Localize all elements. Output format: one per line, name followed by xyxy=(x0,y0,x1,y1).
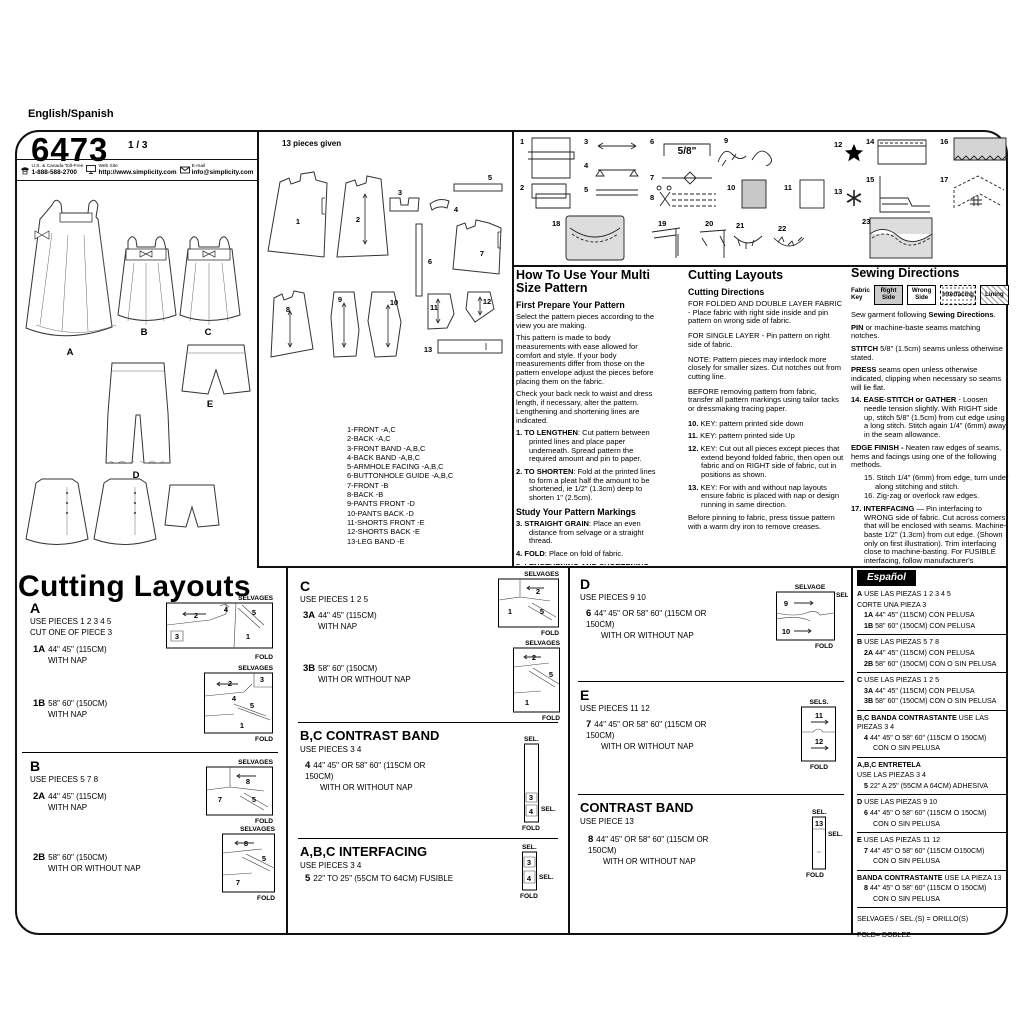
svg-text:11: 11 xyxy=(815,711,823,720)
view-d-pants xyxy=(106,363,170,463)
svg-text:1: 1 xyxy=(296,217,300,226)
svg-text:22: 22 xyxy=(778,224,786,233)
diagram-grain-icon xyxy=(598,143,636,149)
diagram-20-icon xyxy=(700,230,726,258)
layout-entry-3a: 3A44" 45" (115CM)WITH NAP xyxy=(303,610,453,633)
layout-diagram-1b: SELVAGES 2 3 4 5 1 FOLD xyxy=(204,664,274,742)
layout-diagram-1a: SELVAGES 2 4 5 3 1 FOLD xyxy=(166,594,274,660)
espanol-row: 2B58" 60" (150CM) CON O SIN PELUSA xyxy=(857,660,1007,669)
svg-text:18: 18 xyxy=(552,219,560,228)
espanol-divider xyxy=(857,710,1007,711)
svg-text:SELVAGES: SELVAGES xyxy=(238,759,274,766)
diagram-notch-icon xyxy=(662,172,712,184)
espanol-divider xyxy=(857,634,1007,635)
howto-p3: Check your back neck to waist and dress … xyxy=(516,390,662,425)
section-c-use: USE PIECES 1 2 5 xyxy=(300,595,368,604)
divider-bottom-1 xyxy=(286,567,288,933)
fabric-key-label: Fabric Key xyxy=(851,288,870,302)
sewing-step: 15. Stitch 1/4" (6mm) from edge, turn un… xyxy=(851,474,1009,491)
svg-text:12: 12 xyxy=(815,737,823,746)
pieces-given-title: 13 pieces given xyxy=(282,139,341,148)
svg-text:8: 8 xyxy=(246,777,250,786)
svg-text:6: 6 xyxy=(428,257,432,266)
espanol-row: CON O SIN PELUSA xyxy=(857,744,1007,753)
layout-entry-8: 844" 45" OR 58" 60" (115CM OR 150CM)WITH… xyxy=(588,834,738,867)
divider-bottom-3 xyxy=(851,567,853,933)
espanol-row: CUSE LAS PIEZAS 1 2 5 xyxy=(857,676,1007,685)
piece-list-item: 4-BACK BAND -A,B,C xyxy=(347,453,507,462)
email-address: info@simplicity.com xyxy=(192,169,254,176)
espanol-row: 1B58" 60" (150CM) CON PELUSA xyxy=(857,622,1007,631)
view-label-d: D xyxy=(133,470,140,481)
layout-entry-1a: 1A44" 45" (115CM)WITH NAP xyxy=(33,644,183,667)
piece-list-item: 13-LEG BAND -E xyxy=(347,537,507,546)
view-label-b: B xyxy=(141,327,148,338)
contact-bar: U.S. & Canada Toll-Free 1-888-588-2700 W… xyxy=(17,159,257,181)
svg-text:FOLD: FOLD xyxy=(520,893,538,899)
svg-text:5: 5 xyxy=(252,795,256,804)
svg-text:14: 14 xyxy=(866,137,875,146)
svg-text:5: 5 xyxy=(488,173,492,182)
piece-list-item: 7-FRONT -B xyxy=(347,481,507,490)
sewing-p: PRESS seams open unless otherwise indica… xyxy=(851,366,1009,392)
layout-entry-6: 644" 45" OR 58" 60" (115CM OR 150CM)WITH… xyxy=(586,608,736,641)
svg-text:FOLD: FOLD xyxy=(255,654,273,660)
howto-title: How To Use Your Multi Size Pattern xyxy=(516,269,662,295)
espanol-divider xyxy=(857,907,1007,908)
back-view-3 xyxy=(165,485,219,527)
svg-text:8: 8 xyxy=(286,305,290,314)
web-url: http://www.simplicity.com xyxy=(98,169,176,176)
layout-entry-7: 744" 45" OR 58" 60" (115CM OR 150CM)WITH… xyxy=(586,719,736,752)
svg-text:2: 2 xyxy=(532,653,536,662)
svg-text:10: 10 xyxy=(390,298,398,307)
diagram-lines-icon xyxy=(596,190,638,195)
web-group: Web Site http://www.simplicity.com xyxy=(86,164,176,176)
email-group: E-mail info@simplicity.com xyxy=(180,164,254,176)
svg-text:5: 5 xyxy=(549,670,553,679)
svg-text:SELVAGE: SELVAGE xyxy=(795,584,826,591)
fabric-key-right-side: Right Side xyxy=(874,285,903,305)
seam-allowance-text: 5/8" xyxy=(678,146,697,157)
espanol-fold-note: FOLD= DOBLEZ xyxy=(857,931,1007,940)
espanol-row: BANDA CONTRASTANTEUSE LA PIEZA 13 xyxy=(857,874,1007,883)
svg-text:SEL.: SEL. xyxy=(812,809,827,816)
svg-text:SELVAGES: SELVAGES xyxy=(238,665,274,672)
svg-text:SELVAGES: SELVAGES xyxy=(238,595,274,602)
espanol-selvage-note: SELVAGES / SEL.(S) = ORILLO(S) xyxy=(857,915,1007,924)
svg-text:SELVAGES: SELVAGES xyxy=(524,571,560,578)
diagram-fold-icon xyxy=(596,170,638,176)
howto-marking: 4. FOLD: Place on fold of fabric. xyxy=(516,550,662,559)
sewing-p: STITCH 5/8" (1.5cm) seams unless otherwi… xyxy=(851,345,1009,362)
piece-list-item: 11-SHORTS FRONT -E xyxy=(347,518,507,527)
sewing-step: 17. INTERFACING — Pin interfacing to WRO… xyxy=(851,505,1009,565)
piece-list-item: 5-ARMHOLE FACING -A,B,C xyxy=(347,462,507,471)
piece-list-item: 3-FRONT BAND -A,B,C xyxy=(347,444,507,453)
svg-text:2: 2 xyxy=(228,679,232,688)
howto-step: 2. TO SHORTEN: Fold at the printed lines… xyxy=(516,468,662,503)
diagram-15-icon xyxy=(880,176,930,212)
diagram-cutting-lines-icon xyxy=(672,194,716,206)
contrast-band-title: CONTRAST BAND xyxy=(580,800,693,815)
svg-text:7: 7 xyxy=(480,249,484,258)
rule-a-b xyxy=(22,752,278,753)
phone-icon xyxy=(20,165,30,175)
diagram-22-icon xyxy=(774,237,804,246)
svg-text:3: 3 xyxy=(527,858,531,867)
cutting-title: Cutting Layouts xyxy=(688,269,844,282)
cutting-step: 12. KEY: Cut out all pieces except piece… xyxy=(688,445,844,480)
espanol-row: 522" A 25" (55CM A 64CM) ADHESIVA xyxy=(857,782,1007,791)
svg-text:4: 4 xyxy=(454,205,459,214)
piece-list-item: 6-BUTTONHOLE GUIDE -A,B,C xyxy=(347,471,507,480)
garment-views-illustration: A B C D E xyxy=(18,183,255,563)
svg-text:FOLD: FOLD xyxy=(255,736,273,742)
cutting-p4: BEFORE removing pattern from fabric, tra… xyxy=(688,388,844,414)
svg-text:SEL.: SEL. xyxy=(539,874,554,881)
layout-entry-3b: 3B58" 60" (150CM)WITH OR WITHOUT NAP xyxy=(303,663,453,686)
section-b-letter: B xyxy=(30,758,40,774)
espanol-column: Español AUSE LAS PIEZAS 1 2 3 4 5 CORTE … xyxy=(857,570,1007,942)
piece-list-item: 1-FRONT -A,C xyxy=(347,425,507,434)
svg-text:3: 3 xyxy=(398,188,402,197)
espanol-row: 3B58" 60" (150CM) CON O SIN PELUSA xyxy=(857,697,1007,706)
espanol-row: 2A44" 45" (115CM) CON PELUSA xyxy=(857,649,1007,658)
svg-text:6: 6 xyxy=(650,137,654,146)
svg-text:9: 9 xyxy=(338,295,342,304)
layout-diagram-7: SELS. 11 12 FOLD xyxy=(791,698,847,770)
svg-text:1: 1 xyxy=(525,698,529,707)
espanol-row: BUSE LAS PIEZAS 5 7 8 xyxy=(857,638,1007,647)
layout-diagram-6: SELVAGE 9 10 SEL. FOLD xyxy=(770,583,848,649)
bc-contrast-band-title: B,C CONTRAST BAND xyxy=(300,728,439,743)
sewing-title: Sewing Directions xyxy=(851,267,1009,280)
howto-p1: Select the pattern pieces according to t… xyxy=(516,313,662,330)
svg-text:FOLD: FOLD xyxy=(257,895,275,901)
diagram-18-icon xyxy=(566,216,624,260)
svg-text:FOLD: FOLD xyxy=(542,715,560,721)
rule-e-band xyxy=(578,794,844,795)
espanol-row: DUSE LAS PIEZAS 9 10 xyxy=(857,798,1007,807)
svg-text:5: 5 xyxy=(540,607,544,616)
svg-text:12: 12 xyxy=(483,297,491,306)
svg-text:3: 3 xyxy=(584,137,588,146)
howto-step: 1. TO LENGTHEN: Cut pattern between prin… xyxy=(516,429,662,464)
svg-text:8: 8 xyxy=(650,193,654,202)
piece-list-item: 2-BACK -A,C xyxy=(347,434,507,443)
contrast-band-use: USE PIECE 13 xyxy=(580,817,634,826)
layout-entry-5: 522" TO 25" (55CM TO 64CM) FUSIBLE xyxy=(305,873,455,885)
svg-text:17: 17 xyxy=(940,175,948,184)
svg-text:5: 5 xyxy=(584,185,588,194)
section-d-use: USE PIECES 9 10 xyxy=(580,593,646,602)
espanol-row: B,C BANDA CONTRASTANTEUSE LAS PIEZAS 3 4 xyxy=(857,714,1007,732)
back-view-1 xyxy=(26,479,88,545)
rule-c-bcband xyxy=(298,722,558,723)
svg-text:FOLD: FOLD xyxy=(541,630,559,636)
abc-interfacing-title: A,B,C INTERFACING xyxy=(300,844,427,859)
svg-text:7: 7 xyxy=(650,173,654,182)
view-a-dress xyxy=(26,200,112,336)
diagram-17-mark xyxy=(970,196,982,206)
cutting-step: 13. KEY: For with and without nap layout… xyxy=(688,484,844,510)
cutting-p3: NOTE: Pattern pieces may interlock more … xyxy=(688,356,844,382)
piece-list-item: 12-SHORTS BACK -E xyxy=(347,527,507,536)
svg-text:9: 9 xyxy=(724,136,728,145)
howto-markings-heading: Study Your Pattern Markings xyxy=(516,507,662,517)
abc-interfacing-use: USE PIECES 3 4 xyxy=(300,861,361,870)
howto-column: How To Use Your Multi Size Pattern First… xyxy=(516,269,662,565)
phone-number: 1-888-588-2700 xyxy=(32,169,84,176)
layout-entry-2b: 2B58" 60" (150CM)WITH OR WITHOUT NAP xyxy=(33,852,183,875)
svg-text:SEL.: SEL. xyxy=(541,806,556,813)
section-c-letter: C xyxy=(300,578,310,594)
svg-text:11: 11 xyxy=(784,183,792,192)
espanol-row: 1A44" 45" (115CM) CON PELUSA xyxy=(857,611,1007,620)
sewing-p: PIN or machine-baste seams matching notc… xyxy=(851,324,1009,341)
section-a-cut: CUT ONE OF PIECE 3 xyxy=(30,628,112,637)
svg-text:SEL.: SEL. xyxy=(524,736,539,743)
view-label-a: A xyxy=(67,347,74,358)
rule-d-e xyxy=(578,681,844,682)
cutting-step: 11. KEY: pattern printed side Up xyxy=(688,432,844,441)
computer-icon xyxy=(86,165,96,175)
howto-prep-heading: First Prepare Your Pattern xyxy=(516,300,662,310)
layout-diagram-8: SEL. 13 SEL. FOLD xyxy=(804,808,848,878)
svg-text:5: 5 xyxy=(250,701,254,710)
cutting-p2: FOR SINGLE LAYER - Pin pattern on right … xyxy=(688,332,844,349)
sewing-step: 14. EASE-STITCH or GATHER - Loosen needl… xyxy=(851,396,1009,439)
svg-text:SELVAGES: SELVAGES xyxy=(525,640,561,647)
sewing-step: 16. Zig-zag or overlock raw edges. xyxy=(851,492,1009,501)
svg-text:1: 1 xyxy=(508,607,512,616)
svg-text:FOLD: FOLD xyxy=(255,818,273,824)
pattern-instruction-sheet: { "header": { "language": "English/Spani… xyxy=(0,0,1024,1024)
cutting-step: 10. KEY: pattern printed side down xyxy=(688,420,844,429)
howto-marking: 5. LENGTHENING AND SHORTENING LINES. xyxy=(516,563,662,565)
layout-diagram-2a: SELVAGES 8 7 5 FOLD xyxy=(206,758,274,824)
divider-vertical-1 xyxy=(257,131,259,567)
section-d-letter: D xyxy=(580,576,590,592)
espanol-row: CON O SIN PELUSA xyxy=(857,820,1007,829)
svg-text:3: 3 xyxy=(529,793,533,802)
layout-entry-4: 444" 45" OR 58" 60" (115CM OR 150CM)WITH… xyxy=(305,760,455,793)
espanol-row: 844" 45" O 58" 60" (115CM O 150CM) xyxy=(857,884,1007,893)
view-e-shorts xyxy=(182,345,250,394)
diagram-14-icon xyxy=(878,140,926,164)
svg-text:1: 1 xyxy=(520,137,524,146)
sewing-p: EDGE FINISH - Neaten raw edges of seams,… xyxy=(851,444,1009,470)
svg-text:16: 16 xyxy=(940,137,948,146)
svg-text:13: 13 xyxy=(815,819,823,828)
sheet-number: 1 / 3 xyxy=(128,140,147,151)
espanol-row: 444" 45" O 58" 60" (115CM O 150CM) xyxy=(857,734,1007,743)
section-a-use: USE PIECES 1 2 3 4 5 xyxy=(30,617,111,626)
svg-text:SEL.: SEL. xyxy=(828,831,843,838)
cutting-p5: Before pinning to fabric, press tissue p… xyxy=(688,514,844,531)
espanol-row: CORTE UNA PIEZA 3 xyxy=(857,601,1007,610)
fabric-key-lining: Lining xyxy=(980,285,1009,305)
svg-text:3: 3 xyxy=(260,675,264,684)
svg-text:15: 15 xyxy=(866,175,874,184)
svg-text:10: 10 xyxy=(782,627,790,636)
bc-contrast-band-use: USE PIECES 3 4 xyxy=(300,745,361,754)
piece-list-item: 10-PANTS BACK -D xyxy=(347,509,507,518)
espanol-divider xyxy=(857,757,1007,758)
espanol-divider xyxy=(857,672,1007,673)
espanol-row: 744" 45" O 58" 60" (115CM O150CM) xyxy=(857,847,1007,856)
svg-text:8: 8 xyxy=(244,839,248,848)
layout-diagram-3b: SELVAGES 2 5 1 FOLD xyxy=(513,639,561,721)
svg-text:SEL.: SEL. xyxy=(522,844,537,851)
diagram-scissors-icon xyxy=(657,186,671,206)
diagram-star-icon xyxy=(845,144,863,161)
layout-diagram-5: SEL. 3 4 SEL. FOLD xyxy=(518,843,556,899)
diagram-key-up-icon xyxy=(800,180,824,208)
view-label-e: E xyxy=(207,399,213,410)
svg-text:2: 2 xyxy=(194,611,198,620)
piece-list-item: 8-BACK -B xyxy=(347,490,507,499)
sewing-directions-column: Sewing Directions Fabric Key Right Side … xyxy=(851,267,1009,565)
howto-p2: This pattern is made to body measurement… xyxy=(516,334,662,386)
rule-bcband-interfacing xyxy=(298,838,558,839)
svg-text:13: 13 xyxy=(834,187,842,196)
back-view-2 xyxy=(94,479,156,545)
espanol-row: 3A44" 45" (115CM) CON PELUSA xyxy=(857,687,1007,696)
svg-text:7: 7 xyxy=(236,878,240,887)
svg-text:5: 5 xyxy=(262,854,266,863)
espanol-divider xyxy=(857,794,1007,795)
espanol-row: A,B,C ENTRETELA xyxy=(857,761,1007,770)
espanol-row: USE LAS PIEZAS 3 4 xyxy=(857,771,1007,780)
divider-horizontal-middle xyxy=(257,566,1008,568)
svg-text:10: 10 xyxy=(727,183,735,192)
svg-text:FOLD: FOLD xyxy=(806,872,824,878)
sewing-symbol-diagrams: 1 2 3 4 5 6 7 8 9 10 11 12 13 14 15 16 1… xyxy=(512,132,1008,264)
svg-text:5: 5 xyxy=(252,608,256,617)
svg-text:11: 11 xyxy=(430,303,438,312)
svg-text:4: 4 xyxy=(584,161,589,170)
svg-text:20: 20 xyxy=(705,219,713,228)
diagram-asterisk-icon xyxy=(847,190,861,206)
espanol-row: CON O SIN PELUSA xyxy=(857,857,1007,866)
svg-text:SELVAGES: SELVAGES xyxy=(240,826,276,833)
diagram-shorten-icon xyxy=(532,184,570,208)
svg-text:2: 2 xyxy=(536,587,540,596)
fabric-key-interfacing: Interfacing xyxy=(940,285,976,305)
email-icon xyxy=(180,165,190,175)
layout-diagram-2b: SELVAGES 8 5 7 FOLD xyxy=(222,825,276,901)
diagram-lengthen-icon xyxy=(528,138,574,178)
espanol-divider xyxy=(857,870,1007,871)
fabric-key: Fabric Key Right Side Wrong Side Interfa… xyxy=(851,285,1009,305)
espanol-row: AUSE LAS PIEZAS 1 2 3 4 5 xyxy=(857,590,1007,599)
svg-text:3: 3 xyxy=(175,632,179,641)
phone-group: U.S. & Canada Toll-Free 1-888-588-2700 xyxy=(20,164,84,176)
svg-text:9: 9 xyxy=(784,599,788,608)
diagram-19-icon xyxy=(652,228,680,258)
view-label-c: C xyxy=(205,327,212,338)
espanol-row: CON O SIN PELUSA xyxy=(857,895,1007,904)
layout-diagram-4: SEL. 3 4 SEL. FOLD xyxy=(520,735,558,831)
espanol-title: Español xyxy=(857,570,916,586)
espanol-row: 644" 45" O 58" 60" (115CM O 150CM) xyxy=(857,809,1007,818)
svg-text:1: 1 xyxy=(240,721,244,730)
section-e-use: USE PIECES 11 12 xyxy=(580,704,650,713)
svg-text:19: 19 xyxy=(658,219,666,228)
layout-diagram-3a: SELVAGES 2 1 5 FOLD xyxy=(498,570,560,636)
sewing-p: Sew garment following Sewing Directions. xyxy=(851,311,1009,320)
piece-list-item: 9-PANTS FRONT -D xyxy=(347,499,507,508)
diagram-21-icon xyxy=(734,236,762,249)
section-e-letter: E xyxy=(580,687,589,703)
language-label: English/Spanish xyxy=(28,108,114,120)
diagram-tailor-tack-icon xyxy=(718,151,772,166)
svg-text:SEL.: SEL. xyxy=(836,592,848,599)
howto-marking: 3. STRAIGHT GRAIN: Place an even distanc… xyxy=(516,520,662,546)
fabric-key-wrong-side: Wrong Side xyxy=(907,285,936,305)
section-b-use: USE PIECES 5 7 8 xyxy=(30,775,98,784)
espanol-row: EUSE LAS PIEZAS 11 12 xyxy=(857,836,1007,845)
svg-text:FOLD: FOLD xyxy=(522,825,540,831)
pattern-pieces-diagram: 1 2 3 4 5 6 7 8 9 10 11 12 13 xyxy=(260,150,508,410)
svg-text:21: 21 xyxy=(736,221,744,230)
diagram-key-down-icon xyxy=(742,180,766,208)
layout-entry-2a: 2A44" 45" (115CM)WITH NAP xyxy=(33,791,183,814)
svg-text:13: 13 xyxy=(424,345,432,354)
diagram-17-icon xyxy=(954,176,1004,208)
layout-entry-1b: 1B58" 60" (150CM)WITH NAP xyxy=(33,698,183,721)
section-a-letter: A xyxy=(30,600,40,616)
svg-text:7: 7 xyxy=(218,795,222,804)
svg-text:23: 23 xyxy=(862,217,870,226)
pieces-list: 1-FRONT -A,C 2-BACK -A,C 3-FRONT BAND -A… xyxy=(347,425,507,546)
svg-text:2: 2 xyxy=(520,183,524,192)
svg-text:2: 2 xyxy=(356,215,360,224)
espanol-divider xyxy=(857,832,1007,833)
cutting-subtitle: Cutting Directions xyxy=(688,287,844,297)
divider-bottom-2 xyxy=(568,567,570,933)
svg-text:12: 12 xyxy=(834,140,842,149)
cutting-directions-column: Cutting Layouts Cutting Directions FOR F… xyxy=(688,269,844,565)
svg-text:FOLD: FOLD xyxy=(810,764,828,770)
svg-text:SELS.: SELS. xyxy=(809,699,828,706)
svg-text:1: 1 xyxy=(246,632,250,641)
cutting-p1: FOR FOLDED AND DOUBLE LAYER FABRIC - Pla… xyxy=(688,300,844,326)
svg-text:FOLD: FOLD xyxy=(815,643,833,649)
